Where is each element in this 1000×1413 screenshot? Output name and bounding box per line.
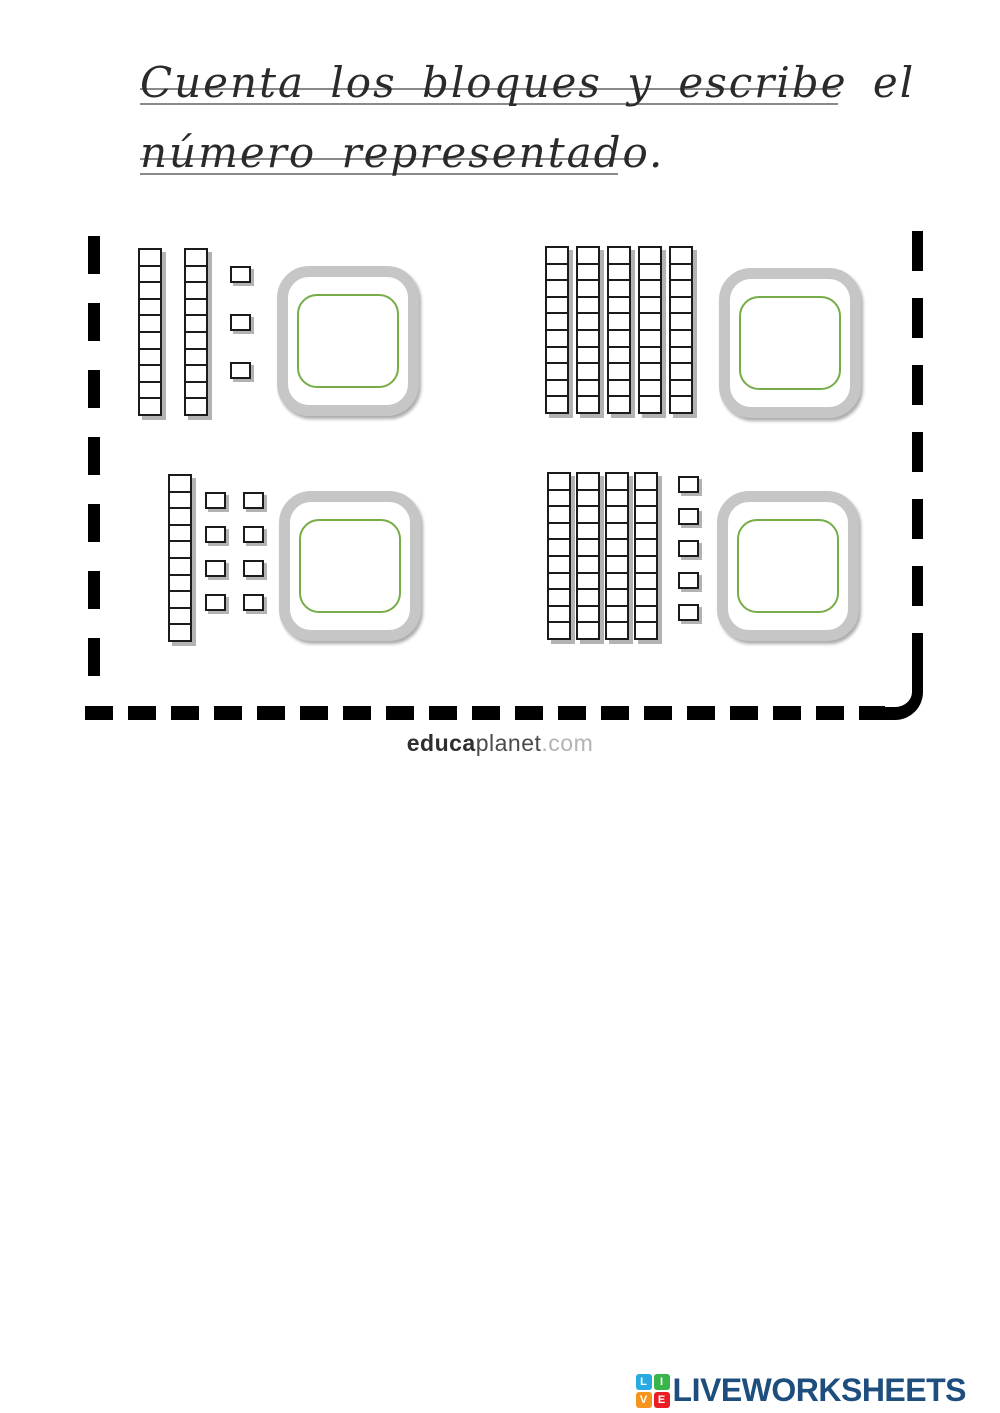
ones-cubes-group <box>678 476 699 621</box>
answer-input[interactable] <box>299 519 401 613</box>
answer-box <box>277 266 419 416</box>
ones-cube <box>678 572 699 589</box>
tens-rod <box>605 472 629 640</box>
logo-letter-square: L <box>636 1374 652 1390</box>
ones-cube <box>230 266 251 283</box>
liveworksheets-icon: LIVE <box>636 1374 670 1408</box>
tens-rod <box>576 472 600 640</box>
ones-cube <box>205 492 226 509</box>
answer-box <box>719 268 861 418</box>
tens-rod <box>168 474 192 642</box>
logo-letter-square: I <box>654 1374 670 1390</box>
tens-rod <box>607 246 631 414</box>
exercise-bottom-left <box>168 474 421 642</box>
logo-letter-square: V <box>636 1392 652 1408</box>
title-line-1: Cuenta los bloques y escribe el <box>140 58 915 107</box>
tens-rod <box>184 248 208 416</box>
ones-cube <box>230 362 251 379</box>
dashed-border-left <box>88 236 100 678</box>
tens-rods-group <box>168 474 192 642</box>
tens-rod <box>545 246 569 414</box>
logo-letter-square: E <box>654 1392 670 1408</box>
ones-cube <box>243 560 264 577</box>
ones-cube <box>678 476 699 493</box>
answer-box <box>279 491 421 641</box>
ones-cube <box>205 560 226 577</box>
educaplanet-brand: educaplanet.com <box>0 730 1000 757</box>
tens-rod <box>547 472 571 640</box>
brand-planet: planet <box>476 730 542 756</box>
ones-cube <box>243 594 264 611</box>
answer-input[interactable] <box>739 296 841 390</box>
ones-cube <box>678 540 699 557</box>
ones-cube <box>243 526 264 543</box>
ones-cubes-group <box>205 492 264 611</box>
ones-cube <box>678 508 699 525</box>
exercise-top-left <box>138 248 419 416</box>
title-line-2: número representado. <box>140 128 664 177</box>
tens-rods-group <box>547 472 658 640</box>
tens-rod <box>576 246 600 414</box>
ones-cube <box>205 526 226 543</box>
liveworksheets-wordmark: LIVEWORKSHEETS <box>673 1372 966 1409</box>
ones-cube <box>243 492 264 509</box>
ones-cube <box>205 594 226 611</box>
ones-cubes-group <box>230 266 251 379</box>
dashed-border-corner <box>882 664 923 720</box>
answer-box <box>717 491 859 641</box>
dashed-border-bottom <box>85 706 885 720</box>
brand-domain: .com <box>541 730 593 756</box>
worksheet-page: Cuenta los bloques y escribe el número r… <box>0 0 1000 1413</box>
dashed-border-right <box>912 231 923 678</box>
tens-rod <box>634 472 658 640</box>
tens-rod <box>138 248 162 416</box>
liveworksheets-logo[interactable]: LIVE LIVEWORKSHEETS <box>636 1372 966 1409</box>
exercise-bottom-right <box>547 472 859 641</box>
ones-cube <box>230 314 251 331</box>
answer-input[interactable] <box>737 519 839 613</box>
answer-input[interactable] <box>297 294 399 388</box>
exercise-top-right <box>545 246 861 418</box>
tens-rod <box>669 246 693 414</box>
tens-rods-group <box>545 246 693 414</box>
tens-rods-group <box>138 248 208 416</box>
ones-cube <box>678 604 699 621</box>
tens-rod <box>638 246 662 414</box>
brand-educa: educa <box>407 730 476 756</box>
